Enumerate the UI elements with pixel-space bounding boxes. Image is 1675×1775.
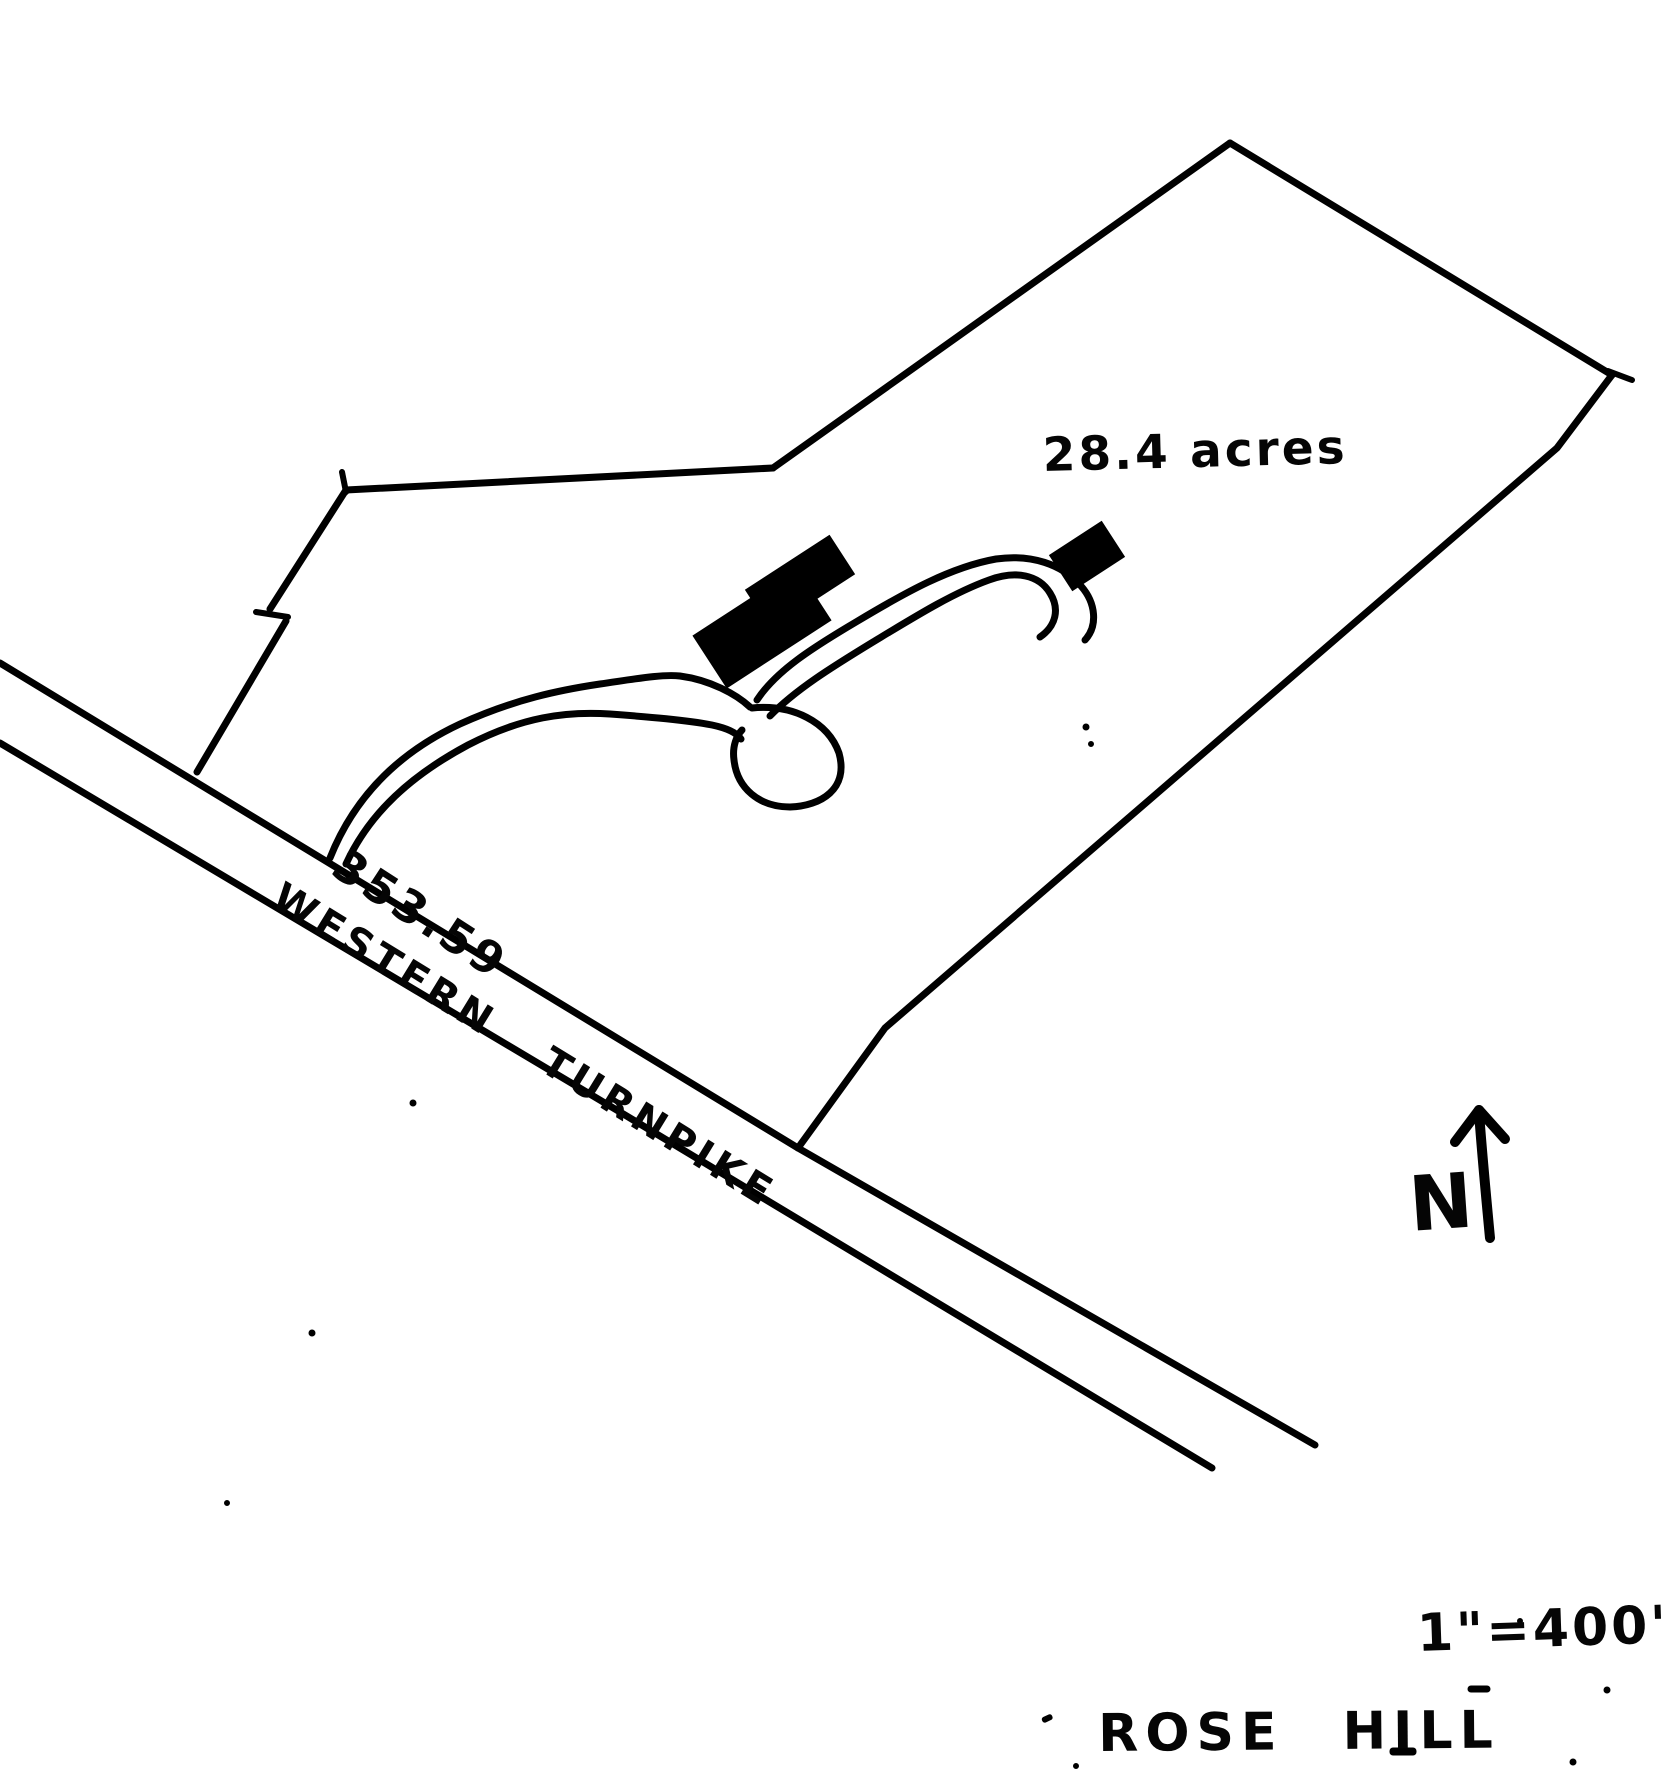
ink-speck: [1074, 1764, 1079, 1769]
ink-dash: [1042, 1714, 1053, 1723]
ink-speck: [309, 1330, 315, 1336]
road-upper-line: [0, 663, 1315, 1445]
acreage-label: 28.4 acres: [1042, 420, 1348, 483]
outbuilding-footprint: [1050, 522, 1125, 591]
ink-speck: [1089, 742, 1094, 747]
driveway-north-line: [330, 676, 750, 858]
road-western-turnpike: [0, 663, 1315, 1468]
ink-speck: [410, 1100, 416, 1106]
turnaround-loop: [734, 707, 842, 807]
parcel-edge-top-west: [346, 468, 773, 490]
ink-speck: [1570, 1759, 1576, 1765]
ink-specks: [225, 724, 1611, 1769]
sketch-title: ROSE HILL: [1098, 1700, 1500, 1764]
scale-label: 1"=400': [1416, 1595, 1670, 1664]
parcel-notch-step: [256, 612, 288, 617]
parcel-edge-west-upper: [270, 490, 346, 609]
sketch-linework: [0, 0, 1675, 1775]
parcel-edge-northwest: [773, 143, 1230, 468]
ink-speck: [1083, 724, 1089, 730]
ink-speck: [225, 1501, 230, 1506]
parcel-edge-west-lower: [197, 621, 286, 772]
parcel-edge-northeast: [1230, 143, 1612, 375]
driveway-south-line: [346, 713, 741, 864]
survey-tick-west-corner: [342, 472, 346, 492]
parcel-edge-southeast: [798, 375, 1612, 1148]
driveway: [330, 558, 1094, 864]
north-arrow-shaft: [1479, 1112, 1490, 1238]
north-label: N: [1406, 1156, 1476, 1249]
ink-dash: [1468, 1686, 1490, 1692]
survey-sketch-page: 28.4 acres 353.59 WESTERN TURNPIKE N 1"=…: [0, 0, 1675, 1775]
ink-speck: [1604, 1687, 1610, 1693]
